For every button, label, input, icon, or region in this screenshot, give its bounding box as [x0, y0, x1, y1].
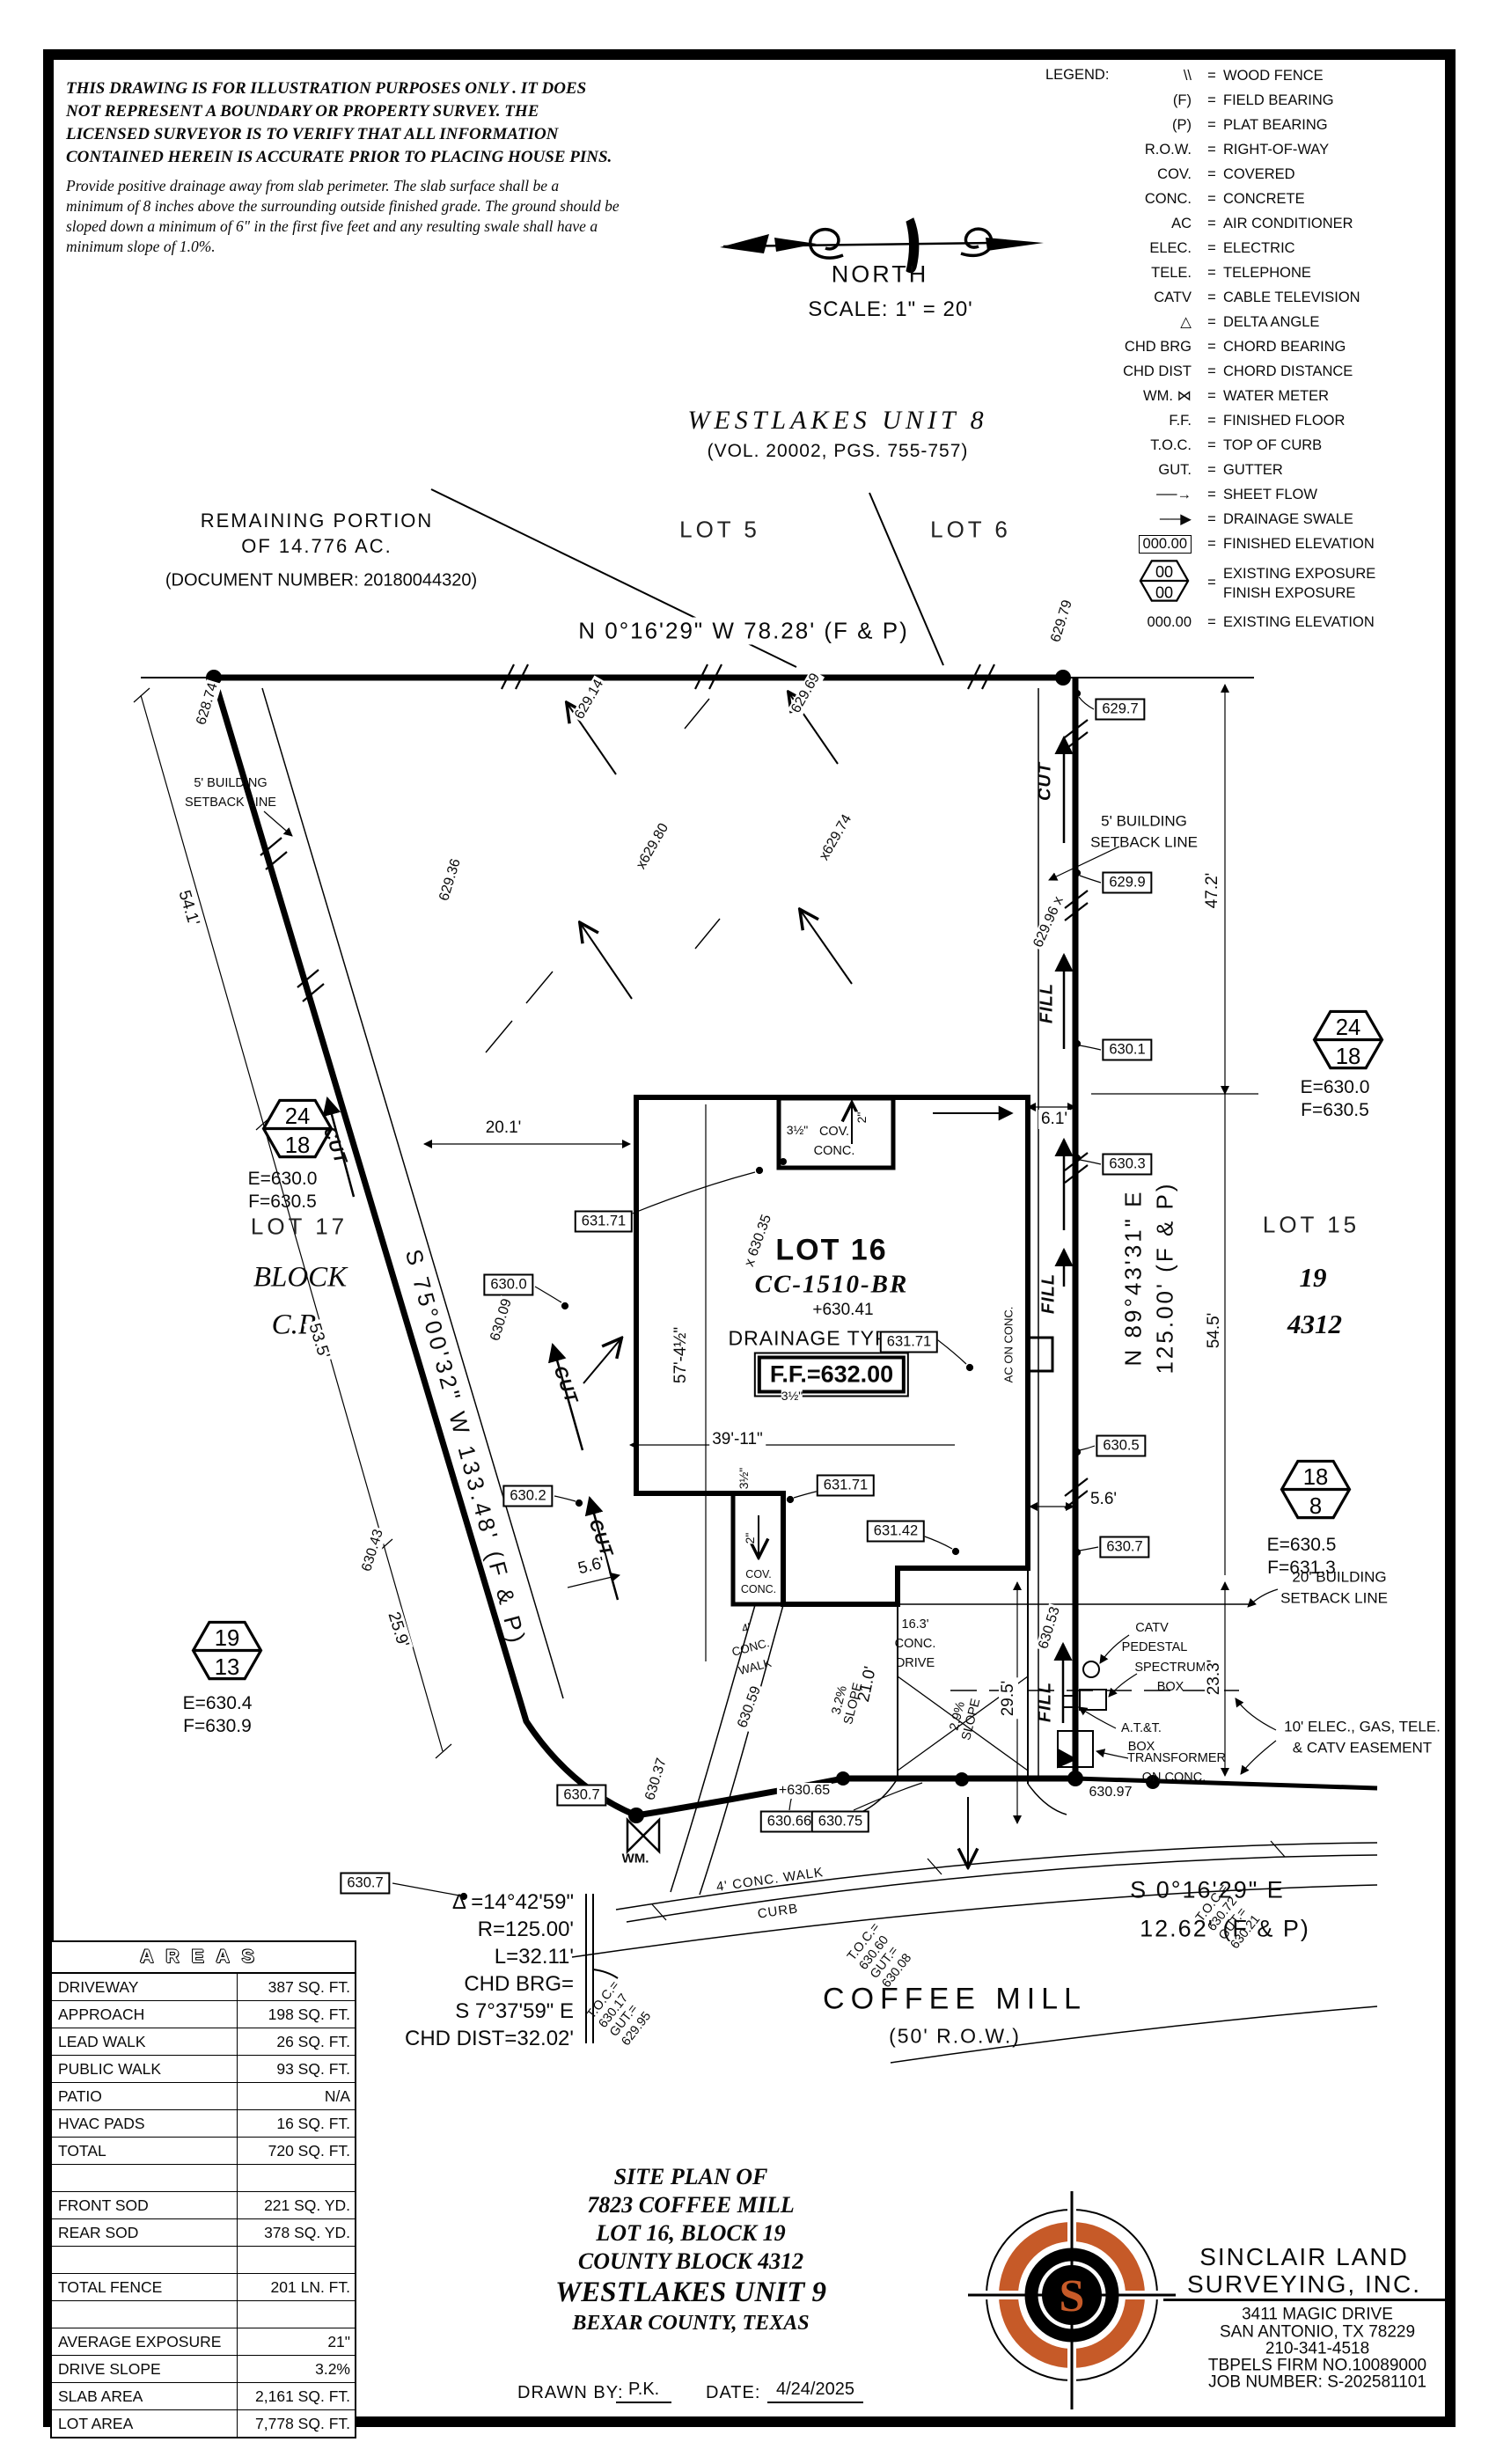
legend-item: WM. ⋈=WATER METER — [1052, 384, 1431, 408]
exposure-ef-label: E=630.5 — [1267, 1535, 1337, 1556]
title-block-line: 7823 COFFEE MILL — [515, 2191, 867, 2219]
legend-label: TELEPHONE — [1223, 265, 1311, 282]
legend-symbol: CHD BRG — [1052, 339, 1200, 356]
exposure-hexagon-icon: 2418 — [1309, 1005, 1387, 1074]
areas-table-row: REAR SOD378 SQ. YD. — [52, 2219, 355, 2247]
legend-label: FINISHED ELEVATION — [1223, 536, 1375, 553]
existing-elevation-label: +630.65 — [777, 1783, 832, 1799]
legend-item: COV.=COVERED — [1052, 162, 1431, 187]
legend-symbol: TELE. — [1052, 265, 1200, 282]
exposure-hexagon: 2418 — [1309, 1005, 1387, 1079]
legend-label: AIR CONDITIONER — [1223, 216, 1353, 232]
svg-text:18: 18 — [1303, 1465, 1329, 1490]
curve-data-line: CHD DIST=32.02' — [334, 2025, 574, 2052]
exposure-ef-label: F=630.5 — [1301, 1100, 1369, 1121]
street-name-label: COFFEE MILL — [823, 1983, 1087, 2017]
subdivision-unit8-label: WESTLAKES UNIT 8 — [687, 406, 987, 436]
logo-letter: S — [1060, 2271, 1085, 2321]
areas-table-row: TOTAL FENCE201 LN. FT. — [52, 2274, 355, 2301]
drawn-by-value: P.K. — [616, 2380, 671, 2403]
east-bearing-label-2: 125.00' (F & P) — [1152, 1181, 1179, 1374]
legend-item: 000.00=FINISHED ELEVATION — [1052, 532, 1431, 556]
date-value: 4/24/2025 — [767, 2380, 863, 2403]
exposure-ef-label: E=630.0 — [1301, 1077, 1370, 1098]
dimension-lines — [134, 685, 1258, 1823]
house-outline — [636, 1097, 1052, 1604]
finished-elevation-box: 630.5 — [1096, 1435, 1146, 1457]
legend: \\=WOOD FENCE(F)=FIELD BEARING(P)=PLAT B… — [1052, 63, 1431, 634]
legend-title: LEGEND: — [1045, 67, 1109, 84]
disclaimer-paragraph-1: THIS DRAWING IS FOR ILLUSTRATION PURPOSE… — [66, 77, 612, 169]
ac-on-conc-label: AC ON CONC. — [1002, 1307, 1016, 1383]
cov-conc-top-label-2: CONC. — [814, 1143, 855, 1159]
spectrum-box-label-2: BOX — [1157, 1679, 1184, 1695]
document-number-label: (DOCUMENT NUMBER: 20180044320) — [165, 571, 477, 591]
finished-elevation-box: 630.0 — [483, 1274, 533, 1296]
legend-symbol: CHD DIST — [1052, 363, 1200, 380]
exposure-ef-label: F=630.9 — [183, 1716, 252, 1737]
svg-text:13: 13 — [215, 1655, 240, 1680]
legend-item: \\=WOOD FENCE — [1052, 63, 1431, 88]
legend-symbol: ELEC. — [1052, 240, 1200, 257]
finished-elevation-box: 630.2 — [502, 1485, 553, 1507]
legend-label: GUTTER — [1223, 462, 1283, 479]
small-dimension-label: 3½" — [737, 1468, 751, 1489]
finished-elevation-box: 630.75 — [811, 1811, 869, 1833]
firm-divider — [1163, 2299, 1447, 2301]
setback20-label-2: SETBACK LINE — [1280, 1589, 1388, 1608]
volume-label: (VOL. 20002, PGS. 755-757) — [708, 441, 969, 462]
areas-table-row: DRIVE SLOPE3.2% — [52, 2356, 355, 2383]
dimension-label: 57'-4½" — [671, 1324, 691, 1386]
areas-table-row: LOT AREA7,778 SQ. FT. — [52, 2410, 355, 2437]
legend-label: FINISHED FLOOR — [1223, 413, 1345, 429]
legend-item: ELEC.=ELECTRIC — [1052, 236, 1431, 260]
exposure-ef-label: E=630.4 — [183, 1693, 253, 1714]
legend-label: SHEET FLOW — [1223, 487, 1317, 503]
finished-elevation-box: 629.7 — [1095, 699, 1145, 721]
areas-table-row: LEAD WALK26 SQ. FT. — [52, 2028, 355, 2056]
areas-table-row: APPROACH198 SQ. FT. — [52, 2001, 355, 2028]
areas-table-row: PATION/A — [52, 2083, 355, 2110]
firm-address-2: SAN ANTONIO, TX 78229 — [1220, 2323, 1415, 2341]
svg-text:24: 24 — [285, 1104, 311, 1129]
areas-table-row: PUBLIC WALK93 SQ. FT. — [52, 2056, 355, 2083]
legend-symbol: 000.00 — [1052, 614, 1200, 631]
svg-text:00: 00 — [1155, 583, 1173, 601]
cut-fill-label: FILL — [1038, 983, 1058, 1023]
exposure-ef-label: E=630.0 — [248, 1169, 318, 1190]
legend-symbol: CONC. — [1052, 191, 1200, 208]
legend-item: (P)=PLAT BEARING — [1052, 113, 1431, 137]
exposure-hexagon-icon: 188 — [1277, 1455, 1354, 1524]
drive-label-1: 16.3' — [902, 1617, 929, 1632]
legend-item: AC=AIR CONDITIONER — [1052, 211, 1431, 236]
lot6-label: LOT 6 — [930, 517, 1011, 544]
water-meter-icon — [627, 1820, 659, 1852]
drive-label-2: CONC. — [895, 1636, 936, 1652]
areas-table-row: HVAC PADS16 SQ. FT. — [52, 2110, 355, 2138]
areas-table-row — [52, 2247, 355, 2274]
firm-name-2: SURVEYING, INC. — [1187, 2270, 1421, 2299]
drive-label-3: DRIVE — [896, 1655, 935, 1671]
exposure-hexagon: 1913 — [188, 1616, 266, 1690]
scale-label: SCALE: 1" = 20' — [808, 297, 973, 322]
att-box-label-1: A.T.&T. — [1121, 1720, 1162, 1736]
dimension-label: 23.3' — [1205, 1657, 1224, 1698]
legend-label: WOOD FENCE — [1223, 68, 1324, 84]
legend-symbol: T.O.C. — [1052, 437, 1200, 454]
lot16-spot-elevation: +630.41 — [812, 1301, 873, 1320]
cut-fill-label: FILL — [1039, 1273, 1060, 1314]
curve-data-line: CHD BRG= — [334, 1970, 574, 1998]
legend-item: GUT.=GUTTER — [1052, 458, 1431, 482]
title-block-line: SITE PLAN OF — [515, 2163, 867, 2191]
legend-label: DELTA ANGLE — [1223, 314, 1319, 331]
site-plan-sheet: S THIS DRAWING IS FOR ILLUSTRATION PURPO… — [0, 0, 1496, 2464]
legend-item: (F)=FIELD BEARING — [1052, 88, 1431, 113]
legend-symbol: AC — [1052, 216, 1200, 232]
dimension-label: 39'-11" — [709, 1430, 766, 1449]
small-dimension-label: 2" — [854, 1112, 869, 1124]
exposure-hexagon-icon: 0000 — [1137, 556, 1192, 605]
legend-label: CONCRETE — [1223, 191, 1305, 208]
legend-label: ELECTRIC — [1223, 240, 1295, 257]
legend-label: CHORD DISTANCE — [1223, 363, 1353, 380]
east-bearing-label-1: N 89°43'31" E — [1120, 1190, 1148, 1367]
small-dimension-label: 3½" — [787, 1123, 808, 1137]
legend-item: △=DELTA ANGLE — [1052, 310, 1431, 334]
exposure-hexagon: 188 — [1277, 1455, 1354, 1529]
lot17-label: LOT 17 — [251, 1214, 348, 1241]
disclaimer-paragraph-2: Provide positive drainage away from slab… — [66, 176, 620, 257]
block-label: BLOCK — [253, 1262, 347, 1294]
legend-item: R.O.W.=RIGHT-OF-WAY — [1052, 137, 1431, 162]
legend-symbol: 000.00 — [1052, 535, 1200, 554]
finished-elevation-box: 631.71 — [817, 1475, 875, 1497]
legend-symbol: ──→ — [1052, 487, 1200, 503]
exposure-hexagon-icon: 1913 — [188, 1616, 266, 1685]
firm-phone: 210-341-4518 — [1265, 2340, 1369, 2358]
legend-label: PLAT BEARING — [1223, 117, 1328, 134]
curve-data-line: S 7°37'59" E — [334, 1998, 574, 2025]
title-block-line: COUNTY BLOCK 4312 — [515, 2248, 867, 2276]
dimension-label: 47.2' — [1203, 870, 1222, 912]
small-dimension-label: 3½" — [781, 1389, 803, 1403]
cut-fill-label: FILL — [1036, 1682, 1056, 1722]
catv-pedestal-label-1: CATV — [1135, 1620, 1169, 1636]
svg-text:00: 00 — [1155, 563, 1173, 581]
title-block-line: WESTLAKES UNIT 9 — [515, 2276, 867, 2310]
date-label: DATE: — [706, 2383, 760, 2403]
legend-symbol: GUT. — [1052, 462, 1200, 479]
svg-text:8: 8 — [1309, 1494, 1322, 1519]
cov-conc-bottom-label-1: COV. — [745, 1568, 771, 1580]
firm-address-1: 3411 MAGIC DRIVE — [1242, 2306, 1393, 2323]
firm-license: TBPELS FIRM NO.10089000 — [1208, 2357, 1426, 2374]
lot16-title: LOT 16 — [775, 1234, 887, 1268]
curve-data-line: L=32.11' — [334, 1943, 574, 1970]
finished-elevation-box: 630.3 — [1102, 1154, 1152, 1176]
finished-elevation-box: 630.66 — [760, 1811, 818, 1833]
legend-item: 000.00=EXISTING ELEVATION — [1052, 610, 1431, 634]
svg-text:18: 18 — [1336, 1045, 1361, 1069]
legend-symbol: COV. — [1052, 166, 1200, 183]
lot5-label: LOT 5 — [679, 517, 760, 544]
cov-conc-top-label-1: COV. — [819, 1124, 849, 1140]
spectrum-box-label-1: SPECTRUM — [1134, 1660, 1206, 1676]
areas-table-title: AREAS — [52, 1942, 355, 1974]
lot15-cb-label: 4312 — [1287, 1309, 1342, 1340]
finished-elevation-box: 631.71 — [575, 1211, 633, 1233]
legend-item: ──→=SHEET FLOW — [1052, 482, 1431, 507]
exposure-hexagon: 2418 — [259, 1094, 336, 1168]
legend-label: DRAINAGE SWALE — [1223, 511, 1353, 528]
existing-elevation-label: 630.97 — [1088, 1785, 1134, 1800]
legend-item: CATV=CABLE TELEVISION — [1052, 285, 1431, 310]
legend-symbol: CATV — [1052, 290, 1200, 306]
legend-item: ──▶=DRAINAGE SWALE — [1052, 507, 1431, 532]
legend-label: EXISTING ELEVATION — [1223, 614, 1375, 631]
exposure-ef-label: F=631.3 — [1267, 1558, 1336, 1579]
dimension-label: 29.5' — [999, 1678, 1018, 1720]
legend-item: F.F.=FINISHED FLOOR — [1052, 408, 1431, 433]
transformer-label-2: ON CONC. — [1142, 1770, 1206, 1786]
areas-table: AREAS DRIVEWAY387 SQ. FT.APPROACH198 SQ.… — [50, 1940, 356, 2438]
dimension-label: 6.1' — [1038, 1110, 1070, 1129]
areas-table-row: SLAB AREA2,161 SQ. FT. — [52, 2383, 355, 2410]
legend-symbol: (P) — [1052, 117, 1200, 134]
legend-label: COVERED — [1223, 166, 1295, 183]
title-block: SITE PLAN OF7823 COFFEE MILLLOT 16, BLOC… — [515, 2163, 867, 2336]
finished-elevation-box: 631.71 — [880, 1331, 938, 1353]
legend-label: EXISTING EXPOSUREFINISH EXPOSURE — [1223, 564, 1375, 603]
transformer-label-1: TRANSFORMER — [1127, 1750, 1226, 1766]
finished-elevation-box: 630.1 — [1102, 1039, 1152, 1061]
small-dimension-label: 2" — [743, 1533, 757, 1544]
lot16-plan-code: CC-1510-BR — [755, 1271, 909, 1300]
legend-symbol: F.F. — [1052, 413, 1200, 429]
legend-label: FIELD BEARING — [1223, 92, 1334, 109]
legend-symbol: R.O.W. — [1052, 142, 1200, 158]
areas-table-row: TOTAL720 SQ. FT. — [52, 2138, 355, 2165]
remaining-portion-label-1: REMAINING PORTION — [201, 510, 434, 532]
legend-label: CHORD BEARING — [1223, 339, 1346, 356]
easement-label-2: & CATV EASEMENT — [1293, 1739, 1432, 1757]
easement-label-1: 10' ELEC., GAS, TELE. — [1284, 1718, 1441, 1736]
firm-name-1: SINCLAIR LAND — [1199, 2243, 1409, 2271]
north-bearing-label: N 0°16'29" W 78.28' (F & P) — [573, 618, 913, 645]
lot15-label: LOT 15 — [1263, 1212, 1360, 1239]
legend-symbol: △ — [1052, 313, 1200, 331]
cov-conc-bottom-label-2: CONC. — [741, 1583, 776, 1595]
legend-symbol: WM. ⋈ — [1052, 387, 1200, 405]
remaining-portion-label-2: OF 14.776 AC. — [241, 535, 392, 558]
cut-fill-label: CUT — [1036, 762, 1056, 801]
legend-label: RIGHT-OF-WAY — [1223, 142, 1329, 158]
setback5-left-label-1: 5' BUILDING — [194, 775, 267, 791]
svg-text:19: 19 — [215, 1626, 240, 1651]
finished-floor-label: F.F.=632.00 — [758, 1356, 906, 1394]
dimension-label: 20.1' — [483, 1118, 524, 1138]
svg-text:24: 24 — [1336, 1016, 1361, 1040]
surveyor-logo: S — [968, 2191, 1176, 2409]
north-label: NORTH — [832, 261, 929, 289]
legend-item: 0000=EXISTING EXPOSUREFINISH EXPOSURE — [1052, 556, 1431, 610]
areas-table-row: FRONT SOD221 SQ. YD. — [52, 2192, 355, 2219]
legend-item: CONC.=CONCRETE — [1052, 187, 1431, 211]
exposure-hexagon-icon: 2418 — [259, 1094, 336, 1163]
legend-symbol: (F) — [1052, 92, 1200, 109]
exposure-ef-label: F=630.5 — [248, 1192, 317, 1213]
curve-data-block: Δ =14°42'59"R=125.00'L=32.11'CHD BRG=S 7… — [334, 1888, 574, 2052]
setback5-right-label-2: SETBACK LINE — [1090, 833, 1198, 852]
setback5-left-label-2: SETBACK LINE — [185, 795, 276, 810]
finished-elevation-box: 631.42 — [867, 1521, 925, 1543]
legend-item: CHD BRG=CHORD BEARING — [1052, 334, 1431, 359]
areas-table-row: DRIVEWAY387 SQ. FT. — [52, 1974, 355, 2001]
dimension-label: 5.6' — [1088, 1490, 1119, 1509]
areas-table-row — [52, 2301, 355, 2328]
catv-pedestal-label-2: PEDESTAL — [1122, 1639, 1188, 1655]
firm-job-number: JOB NUMBER: S-202581101 — [1208, 2373, 1426, 2391]
water-meter-label: WM. — [622, 1852, 649, 1866]
drawn-by-label: DRAWN BY: — [517, 2383, 624, 2403]
legend-label: TOP OF CURB — [1223, 437, 1322, 454]
legend-item: T.O.C.=TOP OF CURB — [1052, 433, 1431, 458]
finished-elevation-box: 629.9 — [1102, 872, 1152, 894]
areas-table-row — [52, 2165, 355, 2192]
finished-elevation-box: 630.7 — [1099, 1536, 1149, 1558]
legend-label: CABLE TELEVISION — [1223, 290, 1360, 306]
legend-label: WATER METER — [1223, 388, 1329, 405]
areas-table-row: AVERAGE EXPOSURE21" — [52, 2328, 355, 2356]
lot15-block-label: 19 — [1300, 1262, 1327, 1294]
legend-item: TELE.=TELEPHONE — [1052, 260, 1431, 285]
legend-item: CHD DIST=CHORD DISTANCE — [1052, 359, 1431, 384]
street-row-label: (50' R.O.W.) — [889, 2025, 1021, 2049]
finished-elevation-box: 630.7 — [556, 1785, 606, 1807]
setback5-right-label-1: 5' BUILDING — [1101, 812, 1187, 831]
dimension-label: 54.5' — [1205, 1310, 1224, 1352]
svg-text:18: 18 — [285, 1133, 311, 1158]
legend-symbol: ──▶ — [1052, 510, 1200, 528]
finished-elevation-box: 630.7 — [340, 1873, 390, 1895]
title-block-line: LOT 16, BLOCK 19 — [515, 2219, 867, 2248]
title-block-line: BEXAR COUNTY, TEXAS — [515, 2310, 867, 2336]
curve-data-line: R=125.00' — [334, 1916, 574, 1943]
